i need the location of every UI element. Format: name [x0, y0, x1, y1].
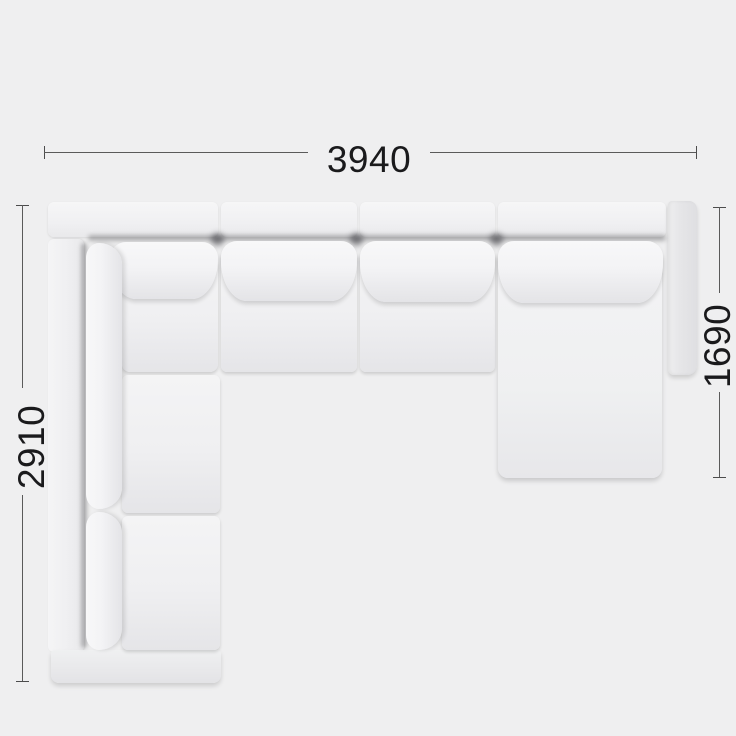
backrest-band-segment-1: [48, 202, 218, 237]
bottom-platform: [51, 650, 221, 683]
dimension-width-label: 3940: [308, 135, 430, 185]
left-seat-cushion-1: [122, 375, 220, 513]
dimension-left-line-bottom: [22, 495, 23, 682]
cushion-pinch-1: [211, 233, 224, 246]
cushion-pinch-2: [350, 233, 363, 246]
right-armrest: [668, 201, 697, 375]
dimension-right-label: 1690: [695, 286, 736, 406]
backrest-band-segment-3: [360, 202, 495, 237]
dimension-width-line-left: [44, 152, 308, 153]
backrest-band-segment-4: [498, 202, 666, 237]
dimension-width-tick-right: [696, 146, 697, 159]
dimension-diagram: 3940 2910 1690: [0, 0, 736, 736]
dimension-right-line-top: [719, 207, 720, 293]
backrest-band-segment-2: [221, 202, 357, 237]
dimension-left-line-top: [22, 205, 23, 388]
back-cushion-2: [221, 241, 357, 301]
back-cushion-3: [360, 241, 495, 302]
back-cushion-left-1: [86, 243, 122, 509]
cushion-pinch-3: [490, 233, 503, 246]
backrest-band-left: [48, 239, 84, 652]
dimension-left-tick-bottom: [16, 681, 29, 682]
back-cushion-chaise: [498, 241, 663, 303]
back-cushion-corner: [110, 242, 218, 299]
dimension-right-line-bottom: [719, 392, 720, 478]
back-cushion-left-2: [86, 512, 122, 650]
dimension-width-line-right: [430, 152, 697, 153]
left-seat-cushion-2: [122, 516, 220, 650]
dimension-right-tick-bottom: [713, 477, 726, 478]
